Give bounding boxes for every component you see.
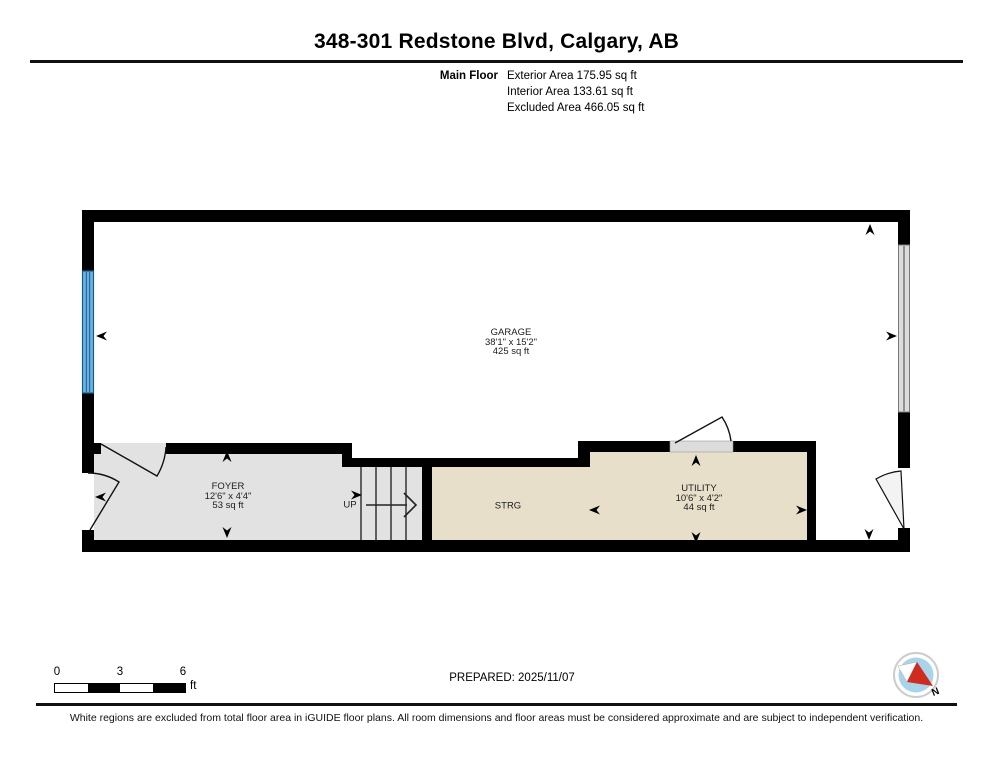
scale-segment (120, 684, 153, 692)
storage-utility-floor (432, 467, 807, 540)
storage-name: STRG (495, 501, 521, 511)
garage-label: GARAGE 38'1" x 15'2" 425 sq ft (485, 328, 537, 357)
disclaimer-text: White regions are excluded from total fl… (0, 712, 993, 724)
scale-segment (153, 684, 186, 692)
wall-utility-right (807, 441, 816, 540)
wall-utility-top-left (590, 441, 670, 452)
utility-label: UTILITY 10'6" x 4'2" 44 sq ft (676, 484, 723, 513)
stairs-floor (352, 467, 422, 540)
utility-area: 44 sq ft (676, 503, 723, 513)
wall-foyer-top (166, 443, 342, 454)
window-left (83, 271, 94, 393)
scale-segment (88, 684, 121, 692)
garage-height-arrow-bottom (865, 529, 874, 540)
footer-divider (36, 703, 957, 706)
wall-stairs-top (352, 458, 432, 467)
garage-area: 425 sq ft (485, 347, 537, 357)
storage-label: STRG (495, 501, 521, 511)
utility-door-threshold (670, 441, 733, 452)
wall-top (82, 210, 910, 222)
floorplan-drawing (0, 0, 993, 768)
scale-segment (55, 684, 88, 692)
foyer-area: 53 sq ft (205, 501, 252, 511)
utility-door-swing (675, 417, 731, 443)
garage-width-arrow-left (96, 332, 107, 341)
wall-foyer-stub (94, 443, 101, 454)
garage-width-arrow-right (886, 332, 897, 341)
wall-bottom (82, 540, 910, 552)
foyer-label: FOYER 12'6" x 4'4" 53 sq ft (205, 482, 252, 511)
wall-stairs-right (422, 458, 432, 540)
side-door-swing (876, 471, 904, 529)
wall-stairs-step (342, 443, 352, 467)
utility-floor-upper (590, 452, 807, 468)
stairs-up-label: UP (343, 500, 356, 511)
wall-storage-top (432, 458, 578, 467)
prepared-date: PREPARED: 2025/11/07 (0, 672, 993, 684)
wall-utility-step (578, 441, 590, 467)
entry-door-opening (82, 473, 94, 530)
wall-utility-top-right (733, 441, 815, 452)
scale-bar-segments (54, 683, 186, 693)
garage-height-arrow-top (866, 224, 875, 235)
